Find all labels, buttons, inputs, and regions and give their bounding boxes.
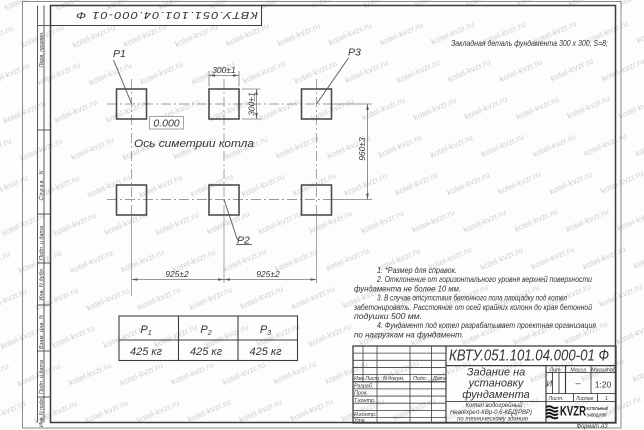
svg-text:Инв. N дубл.: Инв. N дубл.	[39, 268, 45, 301]
svg-text:фундамента не более 10 мм.: фундамента не более 10 мм.	[354, 284, 461, 293]
svg-text:фундамента: фундамента	[462, 389, 530, 401]
svg-text:2. Отклонение от горизонтально: 2. Отклонение от горизонтального уровня …	[376, 275, 592, 284]
svg-text:КВТУ.051.101.04.000-01 Ф: КВТУ.051.101.04.000-01 Ф	[449, 348, 609, 365]
svg-text:KVZR: KVZR	[560, 403, 586, 419]
svg-text:925±2: 925±2	[165, 269, 189, 279]
svg-text:Изм.Лист: Изм.Лист	[354, 376, 380, 382]
svg-text:Подп. и дата: Подп. и дата	[39, 360, 45, 394]
svg-text:Подп.: Подп.	[413, 376, 427, 382]
svg-text:Масштаб: Масштаб	[591, 367, 617, 373]
svg-text:Т.контр.: Т.контр.	[354, 398, 375, 404]
svg-text:Справ. N: Справ. N	[39, 170, 45, 200]
svg-text:–: –	[574, 378, 581, 388]
svg-text:Котел водогрейный: Котел водогрейный	[465, 402, 523, 409]
svg-text:Лист.: Лист.	[548, 396, 564, 402]
svg-text:ЗАВОД РЭП: ЗАВОД РЭП	[587, 413, 607, 418]
svg-text:подушки 500 мм.: подушки 500 мм.	[354, 312, 422, 321]
svg-text:Инв. N подл.: Инв. N подл.	[39, 397, 45, 427]
svg-text:по техническому зданию: по техническому зданию	[457, 417, 528, 423]
svg-text:Дата: Дата	[432, 376, 447, 382]
svg-text:по нагрузкам на фундамент.: по нагрузкам на фундамент.	[354, 330, 464, 339]
svg-text:300±1: 300±1	[247, 92, 257, 116]
svg-text:Подп. и дата: Подп. и дата	[39, 226, 45, 260]
svg-text:960±3: 960±3	[357, 137, 367, 161]
svg-text:Разраб.: Разраб.	[354, 384, 373, 390]
svg-text:P3: P3	[348, 47, 361, 59]
svg-text:Листов: Листов	[575, 396, 593, 402]
svg-text:300±1: 300±1	[212, 65, 236, 75]
svg-text:425 кг: 425 кг	[190, 346, 223, 358]
svg-text:3. В случае отсутствия бетонно: 3. В случае отсутствия бетонного пола пл…	[377, 294, 567, 303]
svg-text:Перв. примен.: Перв. примен.	[39, 32, 45, 68]
svg-text:И: И	[546, 380, 552, 389]
svg-text:установку: установку	[468, 378, 525, 390]
svg-text:N докум.: N докум.	[383, 376, 404, 382]
svg-text:0.000: 0.000	[153, 118, 179, 130]
svg-text:Взам. инв. N: Взам. инв. N	[39, 315, 45, 349]
svg-text:забетонировать. Расстояние от: забетонировать. Расстояние от осей крайн…	[353, 303, 592, 312]
svg-text:Формат А3: Формат А3	[577, 424, 609, 430]
svg-text:КВТУ.051.101.04.000-01 Ф: КВТУ.051.101.04.000-01 Ф	[75, 9, 258, 20]
svg-text:925±2: 925±2	[256, 269, 280, 279]
svg-text:КОТЕЛЬНЫЙ: КОТЕЛЬНЫЙ	[587, 406, 609, 411]
svg-text:Ось симетрии котла: Ось симетрии котла	[134, 138, 254, 150]
svg-text:Пров.: Пров.	[354, 391, 368, 397]
svg-text:Лит.: Лит.	[549, 367, 562, 373]
svg-text:P1: P1	[113, 48, 126, 60]
svg-text:Масса: Масса	[570, 367, 586, 373]
svg-text:1:20: 1:20	[595, 380, 612, 390]
svg-text:P2: P2	[237, 235, 250, 247]
svg-text:1. *Размер для справок.: 1. *Размер для справок.	[377, 266, 457, 275]
svg-text:Утв.: Утв.	[354, 418, 366, 424]
svg-text:425 кг: 425 кг	[130, 346, 163, 358]
svg-text:1: 1	[605, 396, 608, 402]
svg-text:Закладная деталь фундамента 3: Закладная деталь фундамента 300 х 300, S…	[451, 39, 608, 48]
svg-text:425 кг: 425 кг	[249, 346, 282, 358]
svg-text:4. Фундамент под котел разраба: 4. Фундамент под котел разрабатывает про…	[377, 321, 597, 330]
svg-text:Heatexpert-КВр-0,6-КБД(РВР): Heatexpert-КВр-0,6-КБД(РВР)	[450, 410, 532, 416]
